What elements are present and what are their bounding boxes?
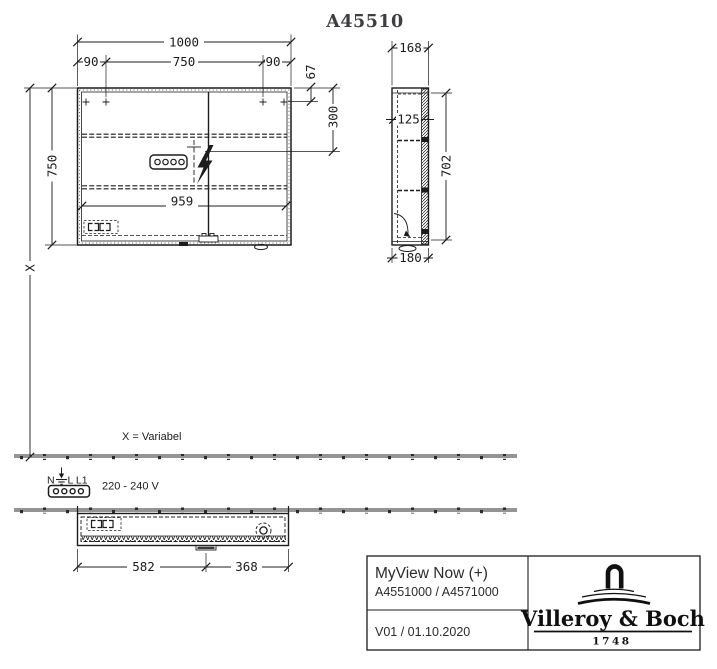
socket-centerline — [187, 140, 201, 183]
product-article-numbers: A4551000 / A4571000 — [375, 585, 499, 599]
dim-front-total-width: 1000 — [169, 35, 199, 50]
front-dimensions: 1000 90 750 90 67 300 750 X 959 — [23, 35, 341, 462]
drawing-canvas: A45510 — [0, 0, 717, 669]
dim-front-top-to-hinge: 67 — [303, 64, 318, 79]
wall-section-line-lower — [14, 508, 517, 514]
connector-plug-icon — [49, 486, 90, 498]
cabinet-inner-outline — [82, 92, 288, 241]
terminal-l-label: L L1 — [68, 475, 88, 487]
bottom-electrical-unit-symbol — [87, 518, 121, 531]
terminal-n-label: N — [47, 475, 55, 487]
version-date: V01 / 01.10.2020 — [375, 625, 470, 639]
lightning-icon — [197, 145, 214, 184]
dim-side-inner-depth: 125 — [397, 112, 420, 127]
technical-drawing-sheet: A45510 — [0, 0, 717, 669]
mirror-back-profile — [422, 89, 429, 244]
electrical-unit-symbol — [84, 221, 118, 234]
dim-side-inner-height: 702 — [439, 155, 454, 178]
mirror-edge — [80, 90, 290, 243]
mounting-tab — [196, 546, 216, 551]
dim-side-total-depth: 180 — [399, 250, 422, 265]
side-dimensions: 168 125 702 180 — [386, 40, 454, 265]
title-block: MyView Now (+) A4551000 / A4571000 V01 /… — [367, 556, 705, 650]
dim-front-right-offset: 90 — [265, 54, 280, 69]
logo-water-icon — [578, 589, 650, 603]
arc-arrowhead — [404, 231, 411, 238]
led-strip-hatch — [81, 536, 287, 542]
cabinet-outline — [78, 88, 292, 245]
dim-front-height: 750 — [45, 155, 60, 178]
article-number: A45510 — [325, 12, 403, 32]
logo-arch-icon — [608, 566, 621, 588]
electrical-connection: N L L1 220 - 240 V — [47, 468, 160, 498]
dim-bottom-right-section: 368 — [235, 559, 258, 574]
hinge-marks — [83, 99, 288, 106]
bottom-dimensions: 582 368 — [73, 549, 292, 574]
voltage-label: 220 - 240 V — [102, 481, 160, 493]
dim-front-to-floor: X — [23, 264, 38, 272]
front-view — [78, 88, 341, 250]
wall-section-line-upper — [14, 454, 517, 460]
dim-front-door-span: 750 — [173, 54, 196, 69]
brand-name: Villeroy & Boch — [520, 606, 705, 631]
dim-side-depth: 168 — [399, 40, 422, 55]
variable-note: X = Variabel — [122, 431, 181, 443]
brand-logo: Villeroy & Boch 1748 — [520, 566, 705, 647]
dim-bottom-left-section: 582 — [132, 559, 155, 574]
power-socket-icon — [150, 155, 187, 169]
dim-front-top-to-socket: 300 — [326, 106, 341, 129]
brand-year: 1748 — [592, 636, 631, 648]
dim-front-left-offset: 90 — [83, 54, 98, 69]
dim-front-inner-width: 959 — [171, 194, 194, 209]
cabinet-feet — [179, 234, 268, 250]
ground-icon — [56, 468, 67, 485]
product-name: MyView Now (+) — [375, 565, 488, 582]
